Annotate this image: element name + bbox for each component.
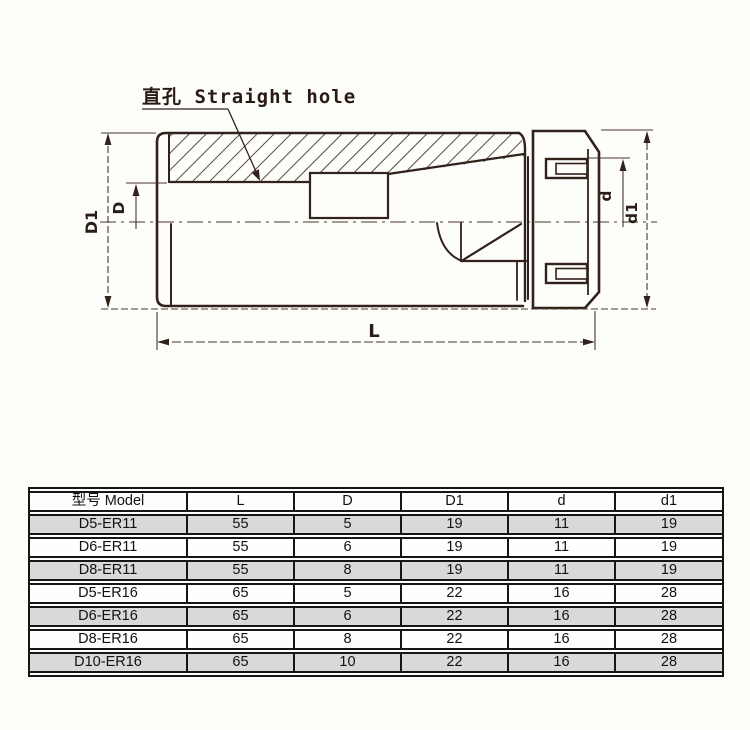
table-cell: 19 bbox=[616, 537, 722, 558]
table-cell: 55 bbox=[188, 514, 295, 535]
table-cell: 5 bbox=[295, 583, 402, 604]
table-cell: 22 bbox=[402, 583, 509, 604]
header-row: 型号 Model L D D1 d d1 bbox=[30, 491, 722, 512]
table-cell: 10 bbox=[295, 652, 402, 673]
table-cell: 6 bbox=[295, 537, 402, 558]
technical-drawing: D1 D d d1 L bbox=[0, 0, 750, 470]
table-row: D8-ER16 65 8 22 16 28 bbox=[30, 629, 722, 650]
table-row: D6-ER11 55 6 19 11 19 bbox=[30, 537, 722, 558]
table-cell: 65 bbox=[188, 583, 295, 604]
table-cell: 65 bbox=[188, 652, 295, 673]
table-row: D8-ER11 55 8 19 11 19 bbox=[30, 560, 722, 581]
table-cell: D5-ER16 bbox=[30, 583, 188, 604]
table-cell: 11 bbox=[509, 514, 616, 535]
table-cell: 19 bbox=[402, 560, 509, 581]
table-cell: 65 bbox=[188, 606, 295, 627]
table-header-cell: L bbox=[188, 491, 295, 512]
table-cell: D8-ER11 bbox=[30, 560, 188, 581]
table-header-cell: d bbox=[509, 491, 616, 512]
table-cell: 28 bbox=[616, 606, 722, 627]
table-cell: 19 bbox=[402, 537, 509, 558]
table-header-cell: 型号 Model bbox=[30, 491, 188, 512]
setscrew-notch bbox=[310, 173, 388, 218]
table-cell: 28 bbox=[616, 629, 722, 650]
table-cell: D6-ER16 bbox=[30, 606, 188, 627]
dim-D1-label: D1 bbox=[82, 210, 101, 234]
table-cell: 5 bbox=[295, 514, 402, 535]
table-cell: 16 bbox=[509, 652, 616, 673]
table-row: D5-ER11 55 5 19 11 19 bbox=[30, 514, 722, 535]
straight-hole-label: 直孔 Straight hole bbox=[142, 85, 356, 108]
table-cell: 19 bbox=[616, 560, 722, 581]
table-cell: 22 bbox=[402, 652, 509, 673]
table-cell: D10-ER16 bbox=[30, 652, 188, 673]
table-cell: 19 bbox=[616, 514, 722, 535]
table-cell: 55 bbox=[188, 560, 295, 581]
table-cell: 8 bbox=[295, 629, 402, 650]
dim-d1-label: d1 bbox=[623, 202, 641, 224]
spec-table-body: D5-ER11 55 5 19 11 19 D6-ER11 55 6 19 11… bbox=[30, 514, 722, 673]
table-cell: 8 bbox=[295, 560, 402, 581]
table-cell: 16 bbox=[509, 583, 616, 604]
table-cell: 6 bbox=[295, 606, 402, 627]
table-cell: 16 bbox=[509, 629, 616, 650]
table-cell: 11 bbox=[509, 560, 616, 581]
spec-table-head: 型号 Model L D D1 d d1 bbox=[30, 491, 722, 512]
dim-L-label: L bbox=[368, 321, 379, 342]
table-cell: D6-ER11 bbox=[30, 537, 188, 558]
table-cell: D8-ER16 bbox=[30, 629, 188, 650]
table-header-cell: D bbox=[295, 491, 402, 512]
table-row: D10-ER16 65 10 22 16 28 bbox=[30, 652, 722, 673]
spec-table: 型号 Model L D D1 d d1 D5-ER11 55 5 19 11 … bbox=[28, 487, 724, 677]
table-row: D5-ER16 65 5 22 16 28 bbox=[30, 583, 722, 604]
table-header-cell: d1 bbox=[616, 491, 722, 512]
table-cell: 22 bbox=[402, 629, 509, 650]
table-cell: 28 bbox=[616, 583, 722, 604]
table-cell: 55 bbox=[188, 537, 295, 558]
table-cell: 16 bbox=[509, 606, 616, 627]
table-row: D6-ER16 65 6 22 16 28 bbox=[30, 606, 722, 627]
table-cell: 65 bbox=[188, 629, 295, 650]
table-header-cell: D1 bbox=[402, 491, 509, 512]
table-cell: 22 bbox=[402, 606, 509, 627]
table-cell: D5-ER11 bbox=[30, 514, 188, 535]
dim-D-label: D bbox=[110, 201, 128, 214]
table-cell: 19 bbox=[402, 514, 509, 535]
table-cell: 28 bbox=[616, 652, 722, 673]
cross-hole bbox=[437, 223, 526, 300]
catalog-sheet: D1 D d d1 L bbox=[0, 0, 750, 730]
table-cell: 11 bbox=[509, 537, 616, 558]
dim-d-label: d bbox=[597, 190, 615, 201]
